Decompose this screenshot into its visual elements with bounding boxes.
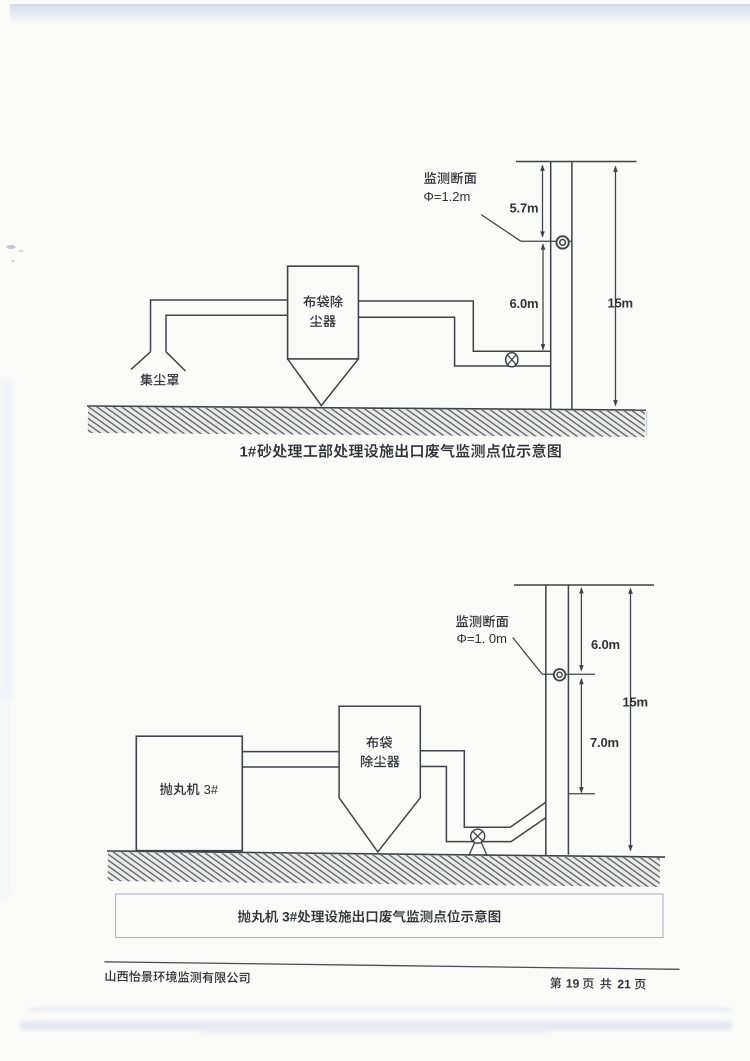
svg-text:7.0m: 7.0m (590, 735, 619, 750)
svg-text:0m: 0m (489, 631, 507, 646)
svg-text:3#: 3# (204, 782, 219, 797)
svg-text:15m: 15m (623, 695, 648, 710)
svg-text:3#: 3# (282, 910, 298, 925)
svg-text:5.7m: 5.7m (510, 201, 539, 216)
svg-text:21: 21 (617, 977, 631, 991)
svg-text:Φ=1.: Φ=1. (457, 631, 486, 646)
svg-text:19: 19 (566, 977, 580, 991)
svg-text:6.0m: 6.0m (510, 296, 539, 311)
svg-text:Φ=1.2m: Φ=1.2m (424, 189, 471, 204)
svg-text:1#: 1# (240, 444, 257, 461)
svg-text:15m: 15m (608, 296, 633, 311)
svg-text:6.0m: 6.0m (591, 637, 620, 652)
